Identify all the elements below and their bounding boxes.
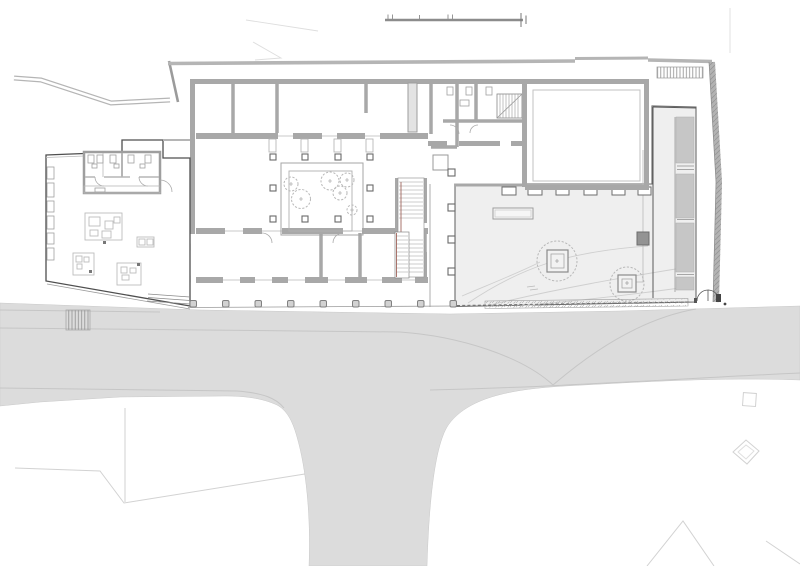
- ramp-segments: [676, 117, 694, 290]
- shaft: [408, 83, 417, 132]
- exterior-stair-north: [657, 67, 703, 78]
- terrace-bench: [493, 208, 533, 219]
- toilet-block: [84, 152, 172, 193]
- west-wing: [46, 140, 190, 309]
- site-plan-page: [0, 0, 800, 566]
- exterior-steps-west: [66, 310, 90, 330]
- pier-base: [433, 155, 448, 170]
- site-plan-drawing: [0, 0, 800, 566]
- dark-utility-square: [637, 232, 649, 245]
- south-stair: [395, 232, 409, 278]
